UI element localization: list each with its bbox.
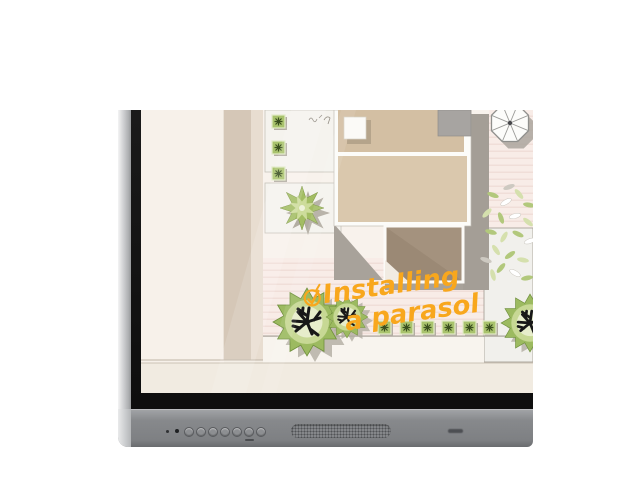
display-side-edge	[118, 110, 131, 409]
bezel-button-7[interactable]	[256, 427, 266, 437]
bezel-button-5[interactable]	[232, 427, 242, 437]
house-floor-plan	[334, 110, 489, 290]
bezel-button-2[interactable]	[196, 427, 206, 437]
bezel-corner-edge	[118, 409, 131, 447]
bottom-bezel	[118, 409, 533, 447]
ir-sensor-icon	[175, 429, 179, 433]
port-marker	[245, 439, 254, 441]
bezel-button-4[interactable]	[220, 427, 230, 437]
speaker-grille	[291, 424, 391, 438]
brand-logo	[448, 429, 463, 433]
interactive-display: Installing a parasol	[118, 110, 533, 447]
wall-band	[141, 110, 224, 393]
bezel-button-1[interactable]	[184, 427, 194, 437]
page-root: { "page": { "background": "#ffffff" }, "…	[0, 0, 640, 480]
status-led-icon	[166, 430, 169, 433]
lower-strip	[141, 363, 533, 393]
touch-screen[interactable]: Installing a parasol	[141, 110, 533, 393]
bezel-button-3[interactable]	[208, 427, 218, 437]
bezel-button-6[interactable]	[244, 427, 254, 437]
garden-plan-drawing: Installing a parasol	[141, 110, 533, 393]
